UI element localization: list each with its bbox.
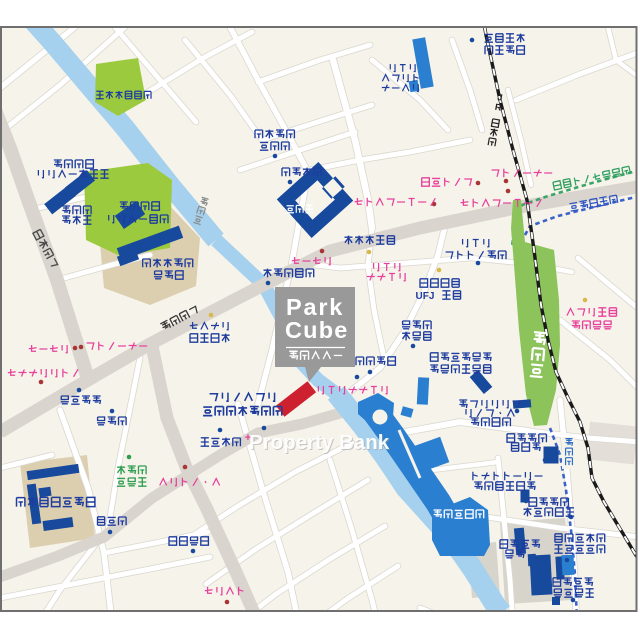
svg-text:Property Bank: Property Bank <box>249 431 390 454</box>
svg-text:UFJ: UFJ <box>416 291 435 302</box>
svg-text:Cube: Cube <box>285 317 349 343</box>
